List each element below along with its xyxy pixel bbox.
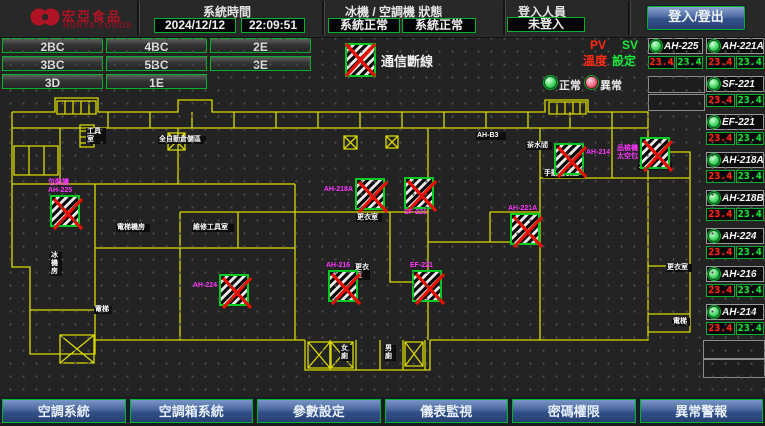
bottom-nav-button-參數設定[interactable]: 參數設定 — [257, 399, 381, 423]
unit-sv-value: 23.4 — [736, 56, 765, 69]
normal-led-icon — [544, 76, 557, 89]
ahu-marker-label: AH-218A — [324, 186, 353, 194]
room-label: 工具室 — [86, 128, 106, 144]
ahu-marker-EF-221[interactable]: EF-221 — [412, 270, 442, 302]
unit-pv-value: 23.4 — [706, 284, 735, 297]
header-divider — [503, 1, 506, 35]
room-label: 電梯 — [672, 318, 690, 326]
ahu-marker-太空包[interactable]: 品檢機太空包 — [640, 137, 670, 169]
unit-pv-value: 23.4 — [706, 246, 735, 259]
unit-name-label: AH-218B — [722, 193, 764, 204]
unit-name-label: AH-218A — [722, 155, 764, 166]
unit-values-row: 23.423.4 — [648, 56, 703, 69]
login-logout-button[interactable]: 登入/登出 — [647, 6, 745, 30]
unit-status-led-icon — [708, 78, 720, 90]
unit-pv-value: 23.4 — [706, 56, 735, 69]
unit-status-led-icon — [708, 40, 720, 52]
setting-header-label: 設定 — [612, 52, 636, 69]
unit-name-label: SF-221 — [722, 79, 755, 90]
unit-values-row: 23.423.4 — [706, 132, 764, 145]
floor-button-3E[interactable]: 3E — [210, 56, 311, 71]
unit-status-led-icon — [708, 154, 720, 166]
unit-values-row: 23.423.4 — [706, 208, 764, 221]
comm-fail-legend-icon — [345, 43, 376, 77]
header-divider — [322, 1, 325, 35]
bottom-nav: 空調系統空調箱系統參數設定儀表監視密碼權限異常警報 — [0, 397, 765, 426]
room-label: 電梯 — [94, 306, 112, 314]
unit-pv-value: 23.4 — [706, 132, 735, 145]
floor-plan-map: 工具室全自動倉儲區AH-B3茶水間手動包裝區太空包區電梯機房維修工具室更衣室更衣… — [0, 92, 765, 396]
pv-header-label: PV — [590, 38, 606, 52]
unit-pv-value: 23.4 — [706, 322, 735, 335]
room-label: AH-B3 — [476, 132, 506, 140]
system-clock-value: 22:09:51 — [241, 18, 305, 33]
ahu-marker-label: 包裝機AH-225 — [48, 179, 72, 195]
unit-panel-EF-221[interactable]: EF-22123.423.4 — [706, 114, 764, 145]
unit-name-label: AH-224 — [722, 231, 756, 242]
unit-panel-AH-221A[interactable]: AH-221A23.423.4 — [706, 38, 764, 69]
header-bar: 宏亞食品 HUNYA FOODS 系統時間 2024/12/12 22:09:5… — [0, 0, 765, 38]
ahu-marker-label: AH-221A — [508, 205, 537, 213]
ahu-marker-label: EF-221 — [410, 262, 433, 270]
unit-values-row: 23.423.4 — [706, 170, 764, 183]
hunya-logo-icon — [30, 4, 60, 30]
unit-sv-value: 23.4 — [736, 170, 765, 183]
room-label: 茶水間 — [526, 142, 552, 150]
unit-name-row: AH-216 — [706, 266, 764, 282]
unit-status-led-icon — [708, 116, 720, 128]
chiller-status-value: 系統正常 — [328, 18, 400, 33]
unit-values-row: 23.423.4 — [706, 284, 764, 297]
unit-name-row: AH-218A — [706, 152, 764, 168]
bottom-nav-button-儀表監視[interactable]: 儀表監視 — [385, 399, 509, 423]
normal-label: 正常 — [559, 77, 581, 93]
ahu-marker-label: SF-221 — [404, 209, 427, 217]
comm-fail-x-icon — [554, 143, 584, 175]
unit-name-row: AH-225 — [648, 38, 703, 54]
unit-name-row: EF-221 — [706, 114, 764, 130]
unit-sv-value: 23.4 — [736, 94, 765, 107]
unit-panel-AH-216[interactable]: AH-21623.423.4 — [706, 266, 764, 297]
unit-sv-value: 23.4 — [736, 246, 765, 259]
ahu-status-value: 系統正常 — [402, 18, 476, 33]
unit-name-label: AH-214 — [722, 307, 756, 318]
bottom-nav-button-空調系統[interactable]: 空調系統 — [2, 399, 126, 423]
ahu-marker-AH-225[interactable]: 包裝機AH-225 — [50, 195, 80, 227]
ahu-marker-SF-221[interactable]: SF-221 — [404, 177, 434, 209]
unit-panel-AH-218B[interactable]: AH-218B23.423.4 — [706, 190, 764, 221]
unit-status-led-icon — [708, 192, 720, 204]
floor-button-1E[interactable]: 1E — [106, 74, 207, 89]
unit-sv-value: 23.4 — [736, 284, 765, 297]
ahu-marker-AH-221A[interactable]: AH-221A — [510, 213, 540, 245]
temp-header-label: 溫度 — [583, 52, 607, 69]
room-label: 女廁 — [340, 345, 352, 361]
floor-button-4BC[interactable]: 4BC — [106, 38, 207, 53]
unit-pv-value: 23.4 — [706, 170, 735, 183]
abnormal-led-icon — [585, 76, 598, 89]
bottom-nav-button-空調箱系統[interactable]: 空調箱系統 — [130, 399, 254, 423]
unit-sv-value: 23.4 — [736, 322, 765, 335]
unit-name-row: SF-221 — [706, 76, 764, 92]
ahu-marker-label: AH-216 — [326, 262, 350, 270]
system-date-value: 2024/12/12 — [154, 18, 236, 33]
unit-sv-value: 23.4 — [736, 208, 765, 221]
floor-button-3D[interactable]: 3D — [2, 74, 103, 89]
unit-status-led-icon — [650, 40, 662, 52]
unit-name-row: AH-214 — [706, 304, 764, 320]
comm-fail-x-icon — [50, 195, 80, 227]
unit-panel-SF-221[interactable]: SF-22123.423.4 — [706, 76, 764, 107]
room-label: 更衣室 — [666, 264, 692, 272]
unit-pv-value: 23.4 — [648, 56, 675, 69]
comm-fail-x-icon — [404, 177, 434, 209]
unit-panel-AH-218A[interactable]: AH-218A23.423.4 — [706, 152, 764, 183]
bottom-nav-button-密碼權限[interactable]: 密碼權限 — [512, 399, 636, 423]
unit-name-label: AH-225 — [664, 41, 698, 52]
ahu-marker-AH-214[interactable]: AH-214 — [554, 143, 584, 175]
comm-fail-x-icon — [412, 270, 442, 302]
comm-fail-x-icon — [328, 270, 358, 302]
empty-slot — [648, 94, 705, 111]
unit-status-led-icon — [708, 268, 720, 280]
unit-panel-AH-225[interactable]: AH-22523.423.4 — [648, 38, 703, 69]
floor-button-2BC[interactable]: 2BC — [2, 38, 103, 53]
ahu-marker-label: AH-214 — [586, 149, 610, 157]
unit-status-led-icon — [708, 306, 720, 318]
ahu-marker-label: AH-224 — [193, 282, 217, 290]
unit-name-row: AH-218B — [706, 190, 764, 206]
room-label: 冰機房 — [50, 252, 62, 276]
ahu-marker-AH-216[interactable]: AH-216 — [328, 270, 358, 302]
unit-pv-value: 23.4 — [706, 94, 735, 107]
login-status-value: 未登入 — [507, 17, 585, 32]
empty-slot — [703, 340, 765, 359]
unit-panel-AH-214[interactable]: AH-21423.423.4 — [706, 304, 764, 335]
unit-sv-value: 23.4 — [736, 132, 765, 145]
unit-status-led-icon — [708, 230, 720, 242]
room-label: 維修工具室 — [192, 224, 234, 232]
hmi-screen: 宏亞食品 HUNYA FOODS 系統時間 2024/12/12 22:09:5… — [0, 0, 765, 426]
abnormal-label: 異常 — [600, 77, 622, 93]
unit-panel-AH-224[interactable]: AH-22423.423.4 — [706, 228, 764, 259]
header-divider — [137, 1, 140, 35]
unit-name-row: AH-221A — [706, 38, 764, 54]
room-label: 男廁 — [384, 345, 396, 361]
unit-values-row: 23.423.4 — [706, 246, 764, 259]
room-label: 全自動倉儲區 — [158, 136, 206, 144]
comm-fail-x-icon — [640, 137, 670, 169]
unit-name-row: AH-224 — [706, 228, 764, 244]
unit-values-row: 23.423.4 — [706, 56, 764, 69]
floor-button-3BC[interactable]: 3BC — [2, 56, 103, 71]
unit-values-row: 23.423.4 — [706, 94, 764, 107]
ahu-marker-label: 品檢機太空包 — [617, 145, 638, 161]
header-divider — [628, 1, 631, 35]
unit-values-row: 23.423.4 — [706, 322, 764, 335]
ahu-marker-AH-224[interactable]: AH-224 — [219, 274, 249, 306]
unit-name-label: AH-221A — [722, 41, 764, 52]
unit-pv-value: 23.4 — [706, 208, 735, 221]
comm-fail-x-icon — [219, 274, 249, 306]
unit-name-label: AH-216 — [722, 269, 756, 280]
comm-fail-x-icon — [510, 213, 540, 245]
comm-fail-legend-label: 通信斷線 — [381, 51, 433, 70]
empty-slot — [703, 359, 765, 378]
room-label: 電梯機房 — [116, 224, 150, 232]
brand-subtitle: HUNYA FOODS — [63, 21, 132, 30]
ahu-marker-AH-218A[interactable]: AH-218A — [355, 178, 385, 210]
floor-button-2E[interactable]: 2E — [210, 38, 311, 53]
floor-button-5BC[interactable]: 5BC — [106, 56, 207, 71]
unit-sv-value: 23.4 — [676, 56, 703, 69]
bottom-nav-button-異常警報[interactable]: 異常警報 — [640, 399, 764, 423]
room-label: 更衣室 — [356, 214, 382, 222]
unit-name-label: EF-221 — [722, 117, 755, 128]
comm-fail-x-icon — [355, 178, 385, 210]
sv-header-label: SV — [622, 38, 638, 52]
empty-slot — [648, 76, 705, 93]
